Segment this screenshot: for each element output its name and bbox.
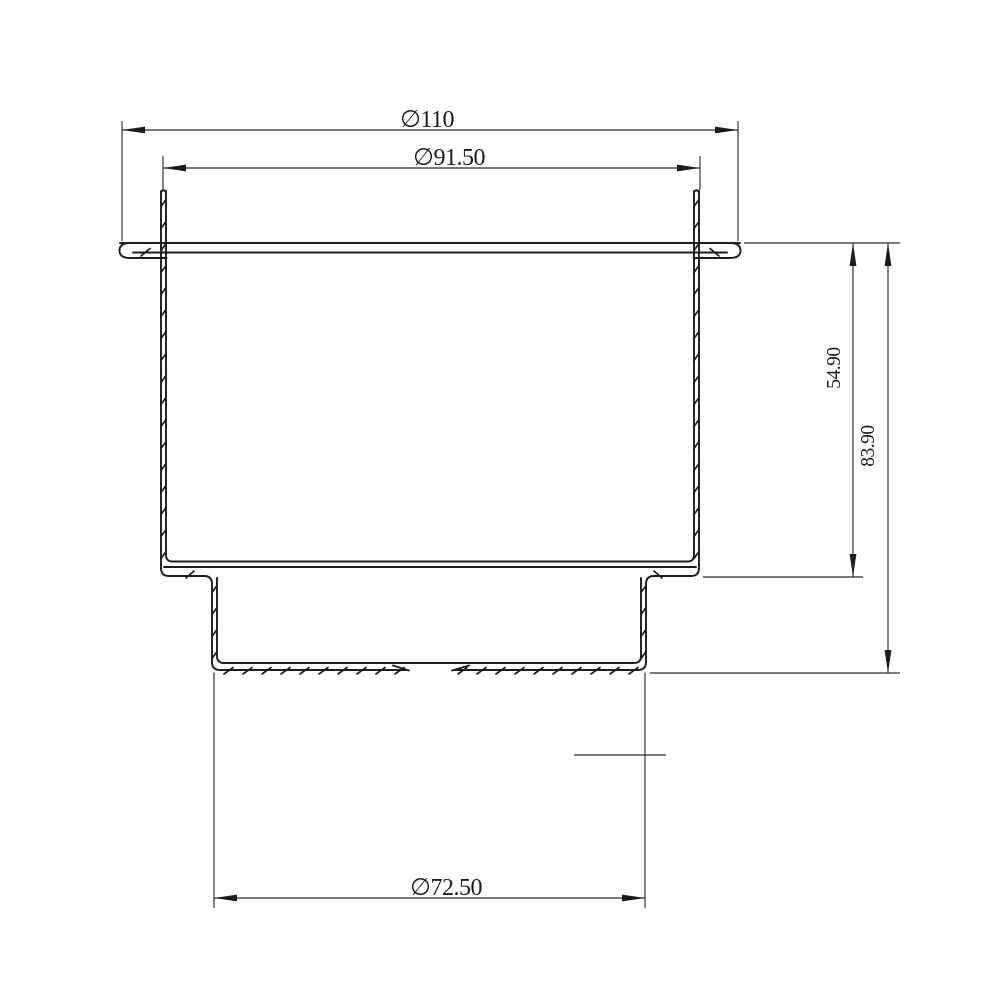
arrowhead-83-90-bottom [885,650,892,673]
cup-holder-technical-drawing: ∅110 ∅91.50 54.90 83.90 ∅72. [0,0,1000,1000]
arrowhead-dia110-right [715,127,738,134]
dimension-total-depth: 83.90 [858,243,891,673]
wall-hatch-ticks [141,200,719,675]
arrowhead-dia72-right [622,895,645,902]
dim-label-body-diameter: ∅91.50 [413,145,485,171]
flange-rolled-end-left [120,243,167,258]
dimensions: ∅110 ∅91.50 54.90 83.90 ∅72. [122,107,900,908]
dimension-body-diameter: ∅91.50 [163,145,700,171]
arrowhead-54-90-bottom [850,554,857,577]
arrowhead-dia91-right [677,165,700,172]
arrowhead-dia91-left [163,165,186,172]
arrowhead-83-90-top [885,243,892,266]
dim-label-outer-flange-diameter: ∅110 [400,107,455,133]
part-inner-profile [166,191,694,562]
extension-lines [122,121,900,908]
dimension-upper-depth: 54.90 [824,243,856,577]
dim-label-upper-depth: 54.90 [824,347,845,388]
dim-label-total-depth: 83.90 [858,425,879,466]
part-cross-section [120,190,741,674]
flange-rolled-end-right [694,243,741,258]
dim-label-base-diameter: ∅72.50 [410,875,482,901]
dimension-base-diameter: ∅72.50 [214,875,645,901]
arrowhead-dia110-left [122,127,145,134]
part-base-inner-profile [217,578,641,663]
part-outer-profile-left [161,191,406,670]
arrowhead-dia72-left [214,895,237,902]
dimension-outer-flange-diameter: ∅110 [122,107,738,133]
arrowhead-54-90-top [850,243,857,266]
drawing-sheet: ∅110 ∅91.50 54.90 83.90 ∅72. [0,0,1000,1000]
rim-cap-left [161,190,166,192]
part-outer-profile-right [455,191,699,670]
rim-cap-right [694,190,699,192]
